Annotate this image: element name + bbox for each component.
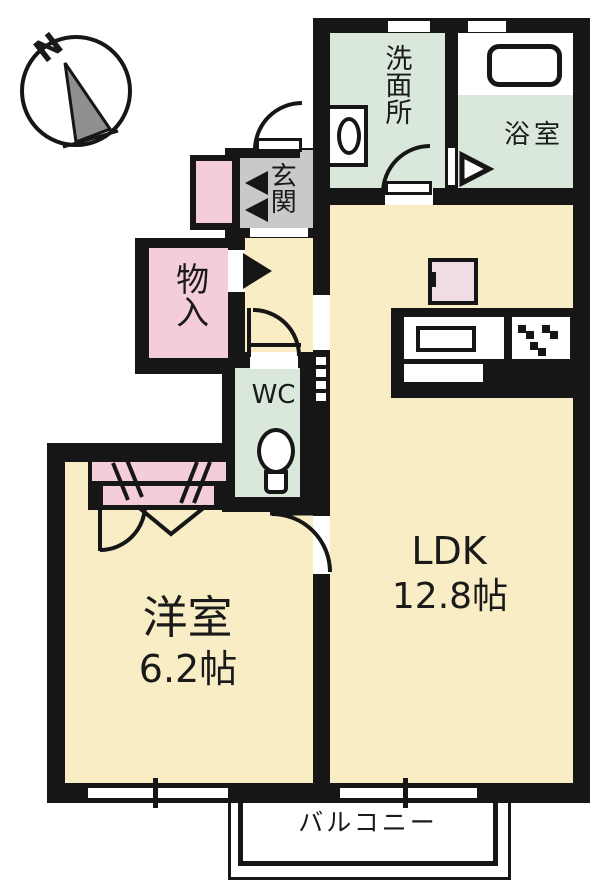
door-gap-western-room <box>313 516 330 574</box>
kitchen-lower-cabinet <box>404 364 483 382</box>
entrance-landing <box>300 150 313 177</box>
bathtub <box>487 44 562 87</box>
wall-left <box>47 443 65 803</box>
western-room-label: 洋室 <box>120 594 255 641</box>
entrance-step <box>250 228 308 237</box>
floor-plan: N 洗面所 浴室 玄関 物入 WC LDK 12.8帖 洋室 6.2帖 バルコニ… <box>0 0 600 890</box>
window-western-room <box>88 788 228 798</box>
stove-burner <box>542 325 550 333</box>
bath-label: 浴室 <box>498 122 570 149</box>
window-mullion-western <box>153 778 158 808</box>
door-gap-wc <box>250 352 298 369</box>
stove-burner <box>526 331 534 339</box>
sliding-door-track-dash <box>316 357 326 365</box>
window-ldk-balcony <box>340 788 477 798</box>
window-top-washroom <box>388 21 430 32</box>
compass-needle <box>65 63 110 142</box>
wall-washroom-left <box>313 18 330 208</box>
wall-washroom-bath-divider <box>445 33 458 148</box>
entrance-label: 玄関 <box>267 162 294 226</box>
closet-lower-panel <box>103 486 214 505</box>
storage-label: 物入 <box>172 262 207 352</box>
refrigerator-handle <box>432 272 436 287</box>
compass-north-label: N <box>29 27 69 69</box>
window-mullion-ldk <box>403 778 408 808</box>
shoe-cabinet <box>196 161 232 223</box>
sliding-door-panel <box>313 295 330 350</box>
wall-top <box>313 18 590 33</box>
closet-upper-panel <box>92 462 226 481</box>
window-top-bath <box>468 21 506 32</box>
sliding-door-track-dash <box>316 381 326 389</box>
toilet-bowl <box>257 428 295 474</box>
stove-burner <box>550 331 558 339</box>
washroom-label: 洗面所 <box>381 44 409 162</box>
compass-needle-base <box>63 131 118 147</box>
kitchen-sink <box>416 326 476 352</box>
bath-door-jamb <box>445 145 458 188</box>
ldk-label: LDK <box>395 532 503 572</box>
sliding-door-track-dash <box>316 393 326 401</box>
stove-burner <box>518 325 526 333</box>
balcony-label: バルコニー <box>272 810 464 836</box>
stove-burner <box>538 348 546 356</box>
wall-right <box>573 18 590 803</box>
stove-burner <box>530 342 538 350</box>
sliding-door-track-dash <box>316 369 326 377</box>
door-gap-storage <box>228 250 245 292</box>
hallway-floor <box>245 238 313 352</box>
ldk-size-label: 12.8帖 <box>370 578 530 616</box>
wc-label: WC <box>246 382 301 409</box>
western-room-size-label: 6.2帖 <box>118 650 258 690</box>
sink-bowl <box>337 117 361 155</box>
washroom-door-leaf <box>385 181 432 195</box>
entrance-door-leaf <box>256 138 302 152</box>
wall-ldk-top <box>330 188 575 205</box>
